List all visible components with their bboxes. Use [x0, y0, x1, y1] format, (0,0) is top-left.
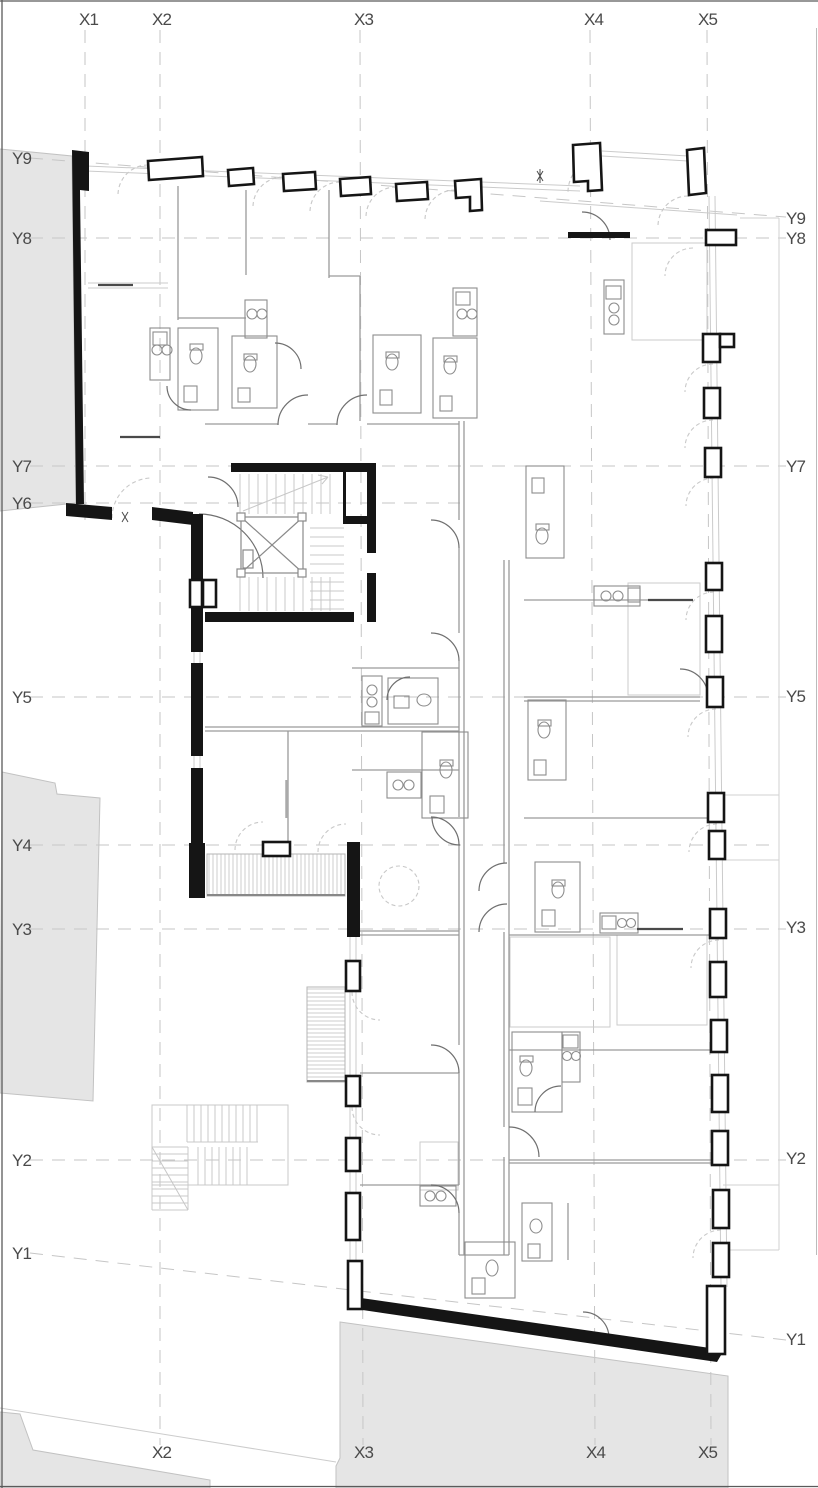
- exterior-stair-upper-treads: [187, 1105, 258, 1142]
- partitions-low-band: [360, 931, 716, 1260]
- wall-stub-top-right: [568, 232, 630, 238]
- core-wall-top: [231, 463, 376, 472]
- pier-entry-double: [190, 580, 202, 607]
- pier-top: [396, 182, 428, 201]
- grid-label-x2-top: X2: [152, 10, 172, 29]
- kitchen-unit: [420, 1186, 456, 1206]
- bathroom-pod: [465, 1242, 515, 1298]
- kitchen-unit: [150, 328, 172, 380]
- pier-right: [711, 1020, 727, 1052]
- grid-label-y1-left: Y1: [12, 1244, 32, 1263]
- bathroom-pod: [512, 1032, 562, 1112]
- core-door-gap: [366, 553, 377, 573]
- pier-left: [346, 1138, 360, 1171]
- core-wall-stub: [343, 516, 376, 524]
- pier-right: [706, 563, 722, 590]
- fixtures: [150, 280, 640, 1298]
- grid-line-x4: [590, 30, 595, 1445]
- grid-label-x2-bottom: X2: [152, 1443, 172, 1462]
- bathroom-pod: [433, 338, 477, 418]
- kitchen-unit: [562, 1032, 581, 1082]
- elevator-shaft: [237, 513, 306, 577]
- room-outline-5: [420, 1142, 458, 1190]
- stair-treads: [152, 474, 344, 1210]
- bathroom-pod: [535, 862, 580, 932]
- pier-right: [713, 1190, 729, 1228]
- kitchen-unit: [387, 772, 421, 798]
- pier-right: [720, 334, 734, 347]
- grid-lines: [30, 30, 786, 1445]
- grid-label-y2-left: Y2: [12, 1151, 32, 1170]
- grid-label-y9-right: Y9: [786, 209, 806, 228]
- balconies: [207, 854, 345, 1082]
- room-outline-3: [510, 937, 610, 1027]
- room-outline-4: [617, 935, 707, 1025]
- grid-label-x5-bottom: X5: [698, 1443, 718, 1462]
- grid-label-y6-left: Y6: [12, 494, 32, 513]
- pier-left: [346, 1076, 360, 1106]
- pier-terrace: [263, 842, 290, 856]
- pier-right: [710, 909, 726, 938]
- kitchen-unit: [600, 913, 638, 933]
- facade-piers: [148, 143, 736, 1354]
- exterior-stair-left-flight: [152, 1147, 188, 1210]
- bathroom-pod: [522, 1203, 552, 1261]
- pier-right: [708, 793, 724, 822]
- pier-entry-double: [203, 580, 216, 607]
- grid-label-y9-left: Y9: [12, 149, 32, 168]
- grid-label-y3-right: Y3: [786, 918, 806, 937]
- grid-line-y1: [30, 1253, 786, 1340]
- grid-label-y5-right: Y5: [786, 687, 806, 706]
- pier-right: [712, 1131, 728, 1165]
- grid-labels: X1 X2 X3 X4 X5 X2 X3 X4 X5 Y9 Y8 Y7 Y6 Y…: [12, 10, 806, 1462]
- pier-right: [709, 831, 725, 859]
- wall-entry-jog-b: [152, 507, 193, 525]
- kitchen-unit: [362, 676, 382, 726]
- grid-label-x4-top: X4: [584, 10, 604, 29]
- elevator-door: [243, 550, 253, 568]
- core-wall-bottom: [205, 612, 354, 622]
- bathroom-pod: [178, 328, 218, 410]
- bathroom-pod: [528, 700, 566, 780]
- exterior-stair-outline: [152, 1105, 288, 1185]
- pier-top: [283, 172, 316, 191]
- wall-left-lower-solid: [347, 842, 360, 937]
- kitchen-unit: [594, 586, 640, 606]
- floor-plan-page: X1 X2 X3 X4 X5 X2 X3 X4 X5 Y9 Y8 Y7 Y6 Y…: [0, 0, 818, 1488]
- exterior-stair-lower-treads: [198, 1147, 247, 1185]
- bathroom-pod: [373, 335, 421, 413]
- dashed-door-arcs: [112, 158, 721, 1258]
- pier-right: [713, 1243, 729, 1277]
- pier-left-corner: [348, 1261, 362, 1309]
- core-wall-inner: [343, 472, 346, 516]
- wall-left-mid: [191, 607, 203, 652]
- grid-label-y2-right: Y2: [786, 1149, 806, 1168]
- grid-label-x1-top: X1: [79, 10, 99, 29]
- room-outline-2: [632, 243, 707, 340]
- pier-top: [687, 148, 706, 195]
- glazing-and-light-lines: [86, 151, 737, 1300]
- grid-label-x3-top: X3: [354, 10, 374, 29]
- balcony-south-west: [307, 987, 345, 1082]
- pier-top: [148, 157, 203, 180]
- drawing-frame: [0, 0, 818, 1488]
- door-arcs: [167, 212, 708, 1338]
- pier-right-corner: [707, 1286, 725, 1354]
- core-stair-side-flight: [310, 528, 344, 609]
- grid-label-y7-right: Y7: [786, 457, 806, 476]
- core-wall-right: [367, 472, 376, 622]
- pier-top: [228, 168, 254, 186]
- pier-right: [707, 677, 723, 707]
- round-table: [379, 866, 419, 906]
- wall-left-mid: [189, 843, 205, 898]
- grid-label-x4-bottom: X4: [586, 1443, 606, 1462]
- pier-right: [706, 230, 736, 245]
- bathroom-pod: [388, 678, 438, 724]
- grid-label-y3-left: Y3: [12, 920, 32, 939]
- property-lines: [723, 218, 779, 1250]
- pier-right: [704, 388, 720, 418]
- partitions-top-band: [178, 186, 459, 424]
- elevator-cross: [241, 517, 303, 573]
- pier-left: [346, 961, 360, 991]
- pier-right: [703, 334, 720, 362]
- grid-label-x5-top: X5: [698, 10, 718, 29]
- balcony-terrace-west: [207, 854, 345, 896]
- pier-right: [712, 1075, 728, 1112]
- interior-partitions: [178, 186, 716, 1260]
- bathroom-pod: [232, 336, 277, 408]
- grid-label-y5-left: Y5: [12, 688, 32, 707]
- kitchen-unit: [453, 288, 477, 336]
- kitchen-unit: [604, 280, 624, 334]
- site-mass-bottom-left: [0, 1412, 210, 1488]
- grid-label-x3-bottom: X3: [354, 1443, 374, 1462]
- floor-plan-drawing: X1 X2 X3 X4 X5 X2 X3 X4 X5 Y9 Y8 Y7 Y6 Y…: [0, 0, 818, 1488]
- grid-label-y1-right: Y1: [786, 1330, 806, 1349]
- pier-top: [573, 143, 602, 191]
- wall-left-mid: [191, 514, 203, 580]
- bathroom-pod: [422, 732, 468, 818]
- pier-right: [705, 448, 721, 477]
- wall-entry-jog-a: [66, 503, 112, 520]
- grid-label-y8-right: Y8: [786, 229, 806, 248]
- bathroom-pod: [526, 466, 564, 558]
- grid-label-y7-left: Y7: [12, 457, 32, 476]
- pier-right: [710, 962, 726, 997]
- kitchen-unit: [245, 300, 267, 338]
- pier-top: [340, 177, 371, 196]
- pier-right: [706, 616, 722, 652]
- pier-left: [346, 1193, 360, 1240]
- grid-label-y8-left: Y8: [12, 229, 32, 248]
- left-window-glazing: [194, 652, 356, 1300]
- pier-top: [455, 179, 482, 211]
- wall-left-mid: [191, 768, 203, 843]
- wall-left-mid: [191, 663, 203, 756]
- corridor-walls: [459, 421, 509, 1255]
- grid-label-y4-left: Y4: [12, 836, 32, 855]
